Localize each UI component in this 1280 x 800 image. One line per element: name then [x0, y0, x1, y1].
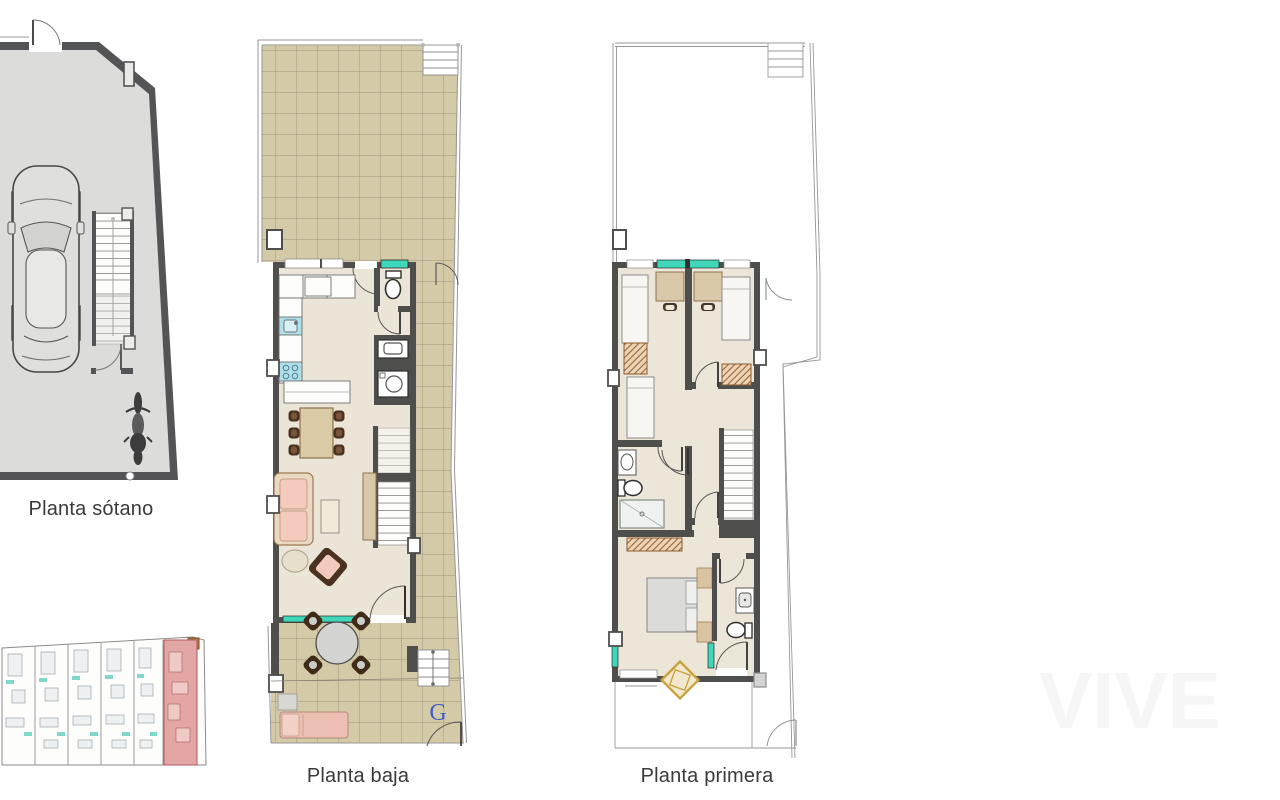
stove-icon	[279, 362, 302, 381]
bed-icon	[627, 377, 654, 438]
wall-pier	[408, 538, 420, 553]
patio-side-table	[278, 694, 297, 710]
wardrobe-icon	[722, 364, 751, 385]
neighbor-door-arc	[766, 278, 792, 300]
ground-floor-plan: G	[255, 30, 490, 775]
wall-pier	[267, 360, 279, 376]
car-icon	[8, 166, 84, 372]
wall-pier	[754, 673, 766, 687]
wall-pier	[609, 632, 622, 646]
coffee-table	[321, 500, 339, 533]
sun-lounger-icon	[280, 712, 348, 738]
wall-pier	[754, 350, 766, 365]
site-plan	[0, 632, 212, 772]
first-floor-plan	[600, 30, 835, 775]
first-floor-label: Planta primera	[607, 765, 807, 788]
terrace-stairs	[421, 43, 460, 75]
sink-icon	[618, 450, 636, 475]
wall-pier	[613, 230, 626, 249]
front-windows	[627, 259, 750, 269]
sink-icon	[736, 588, 754, 613]
highlighted-unit	[164, 640, 197, 765]
wardrobe-icon	[627, 538, 682, 551]
toilet-icon	[386, 271, 402, 299]
rug-icon	[282, 550, 308, 572]
bed-icon	[722, 277, 750, 340]
basement-floor-plan	[0, 18, 200, 498]
watermark: VIVE	[995, 655, 1265, 775]
utility-niche	[374, 335, 416, 405]
patio-steps	[418, 650, 449, 686]
rear-windows	[283, 615, 406, 623]
floorplan-sheet: Planta sótano	[0, 0, 1280, 800]
basement-label: Planta sótano	[0, 498, 182, 521]
wall-notch	[126, 472, 134, 480]
basement-entry-door	[29, 20, 62, 52]
wall-pier	[267, 496, 279, 513]
wall-pier	[124, 62, 134, 86]
wardrobe-icon	[624, 343, 647, 374]
dining-table	[289, 408, 345, 458]
shower-icon	[620, 500, 664, 528]
ground-floor-label: Planta baja	[258, 765, 458, 788]
toilet-icon	[618, 480, 642, 496]
roof-terrace-stairs	[768, 43, 803, 77]
wall-pier	[269, 675, 283, 692]
bed-icon	[622, 275, 648, 343]
wall-pier	[267, 230, 282, 249]
garage-letter: G	[429, 700, 446, 726]
staircase	[373, 426, 412, 548]
console-table	[363, 473, 376, 540]
toilet-icon	[727, 623, 752, 639]
wall-pier	[608, 370, 619, 386]
